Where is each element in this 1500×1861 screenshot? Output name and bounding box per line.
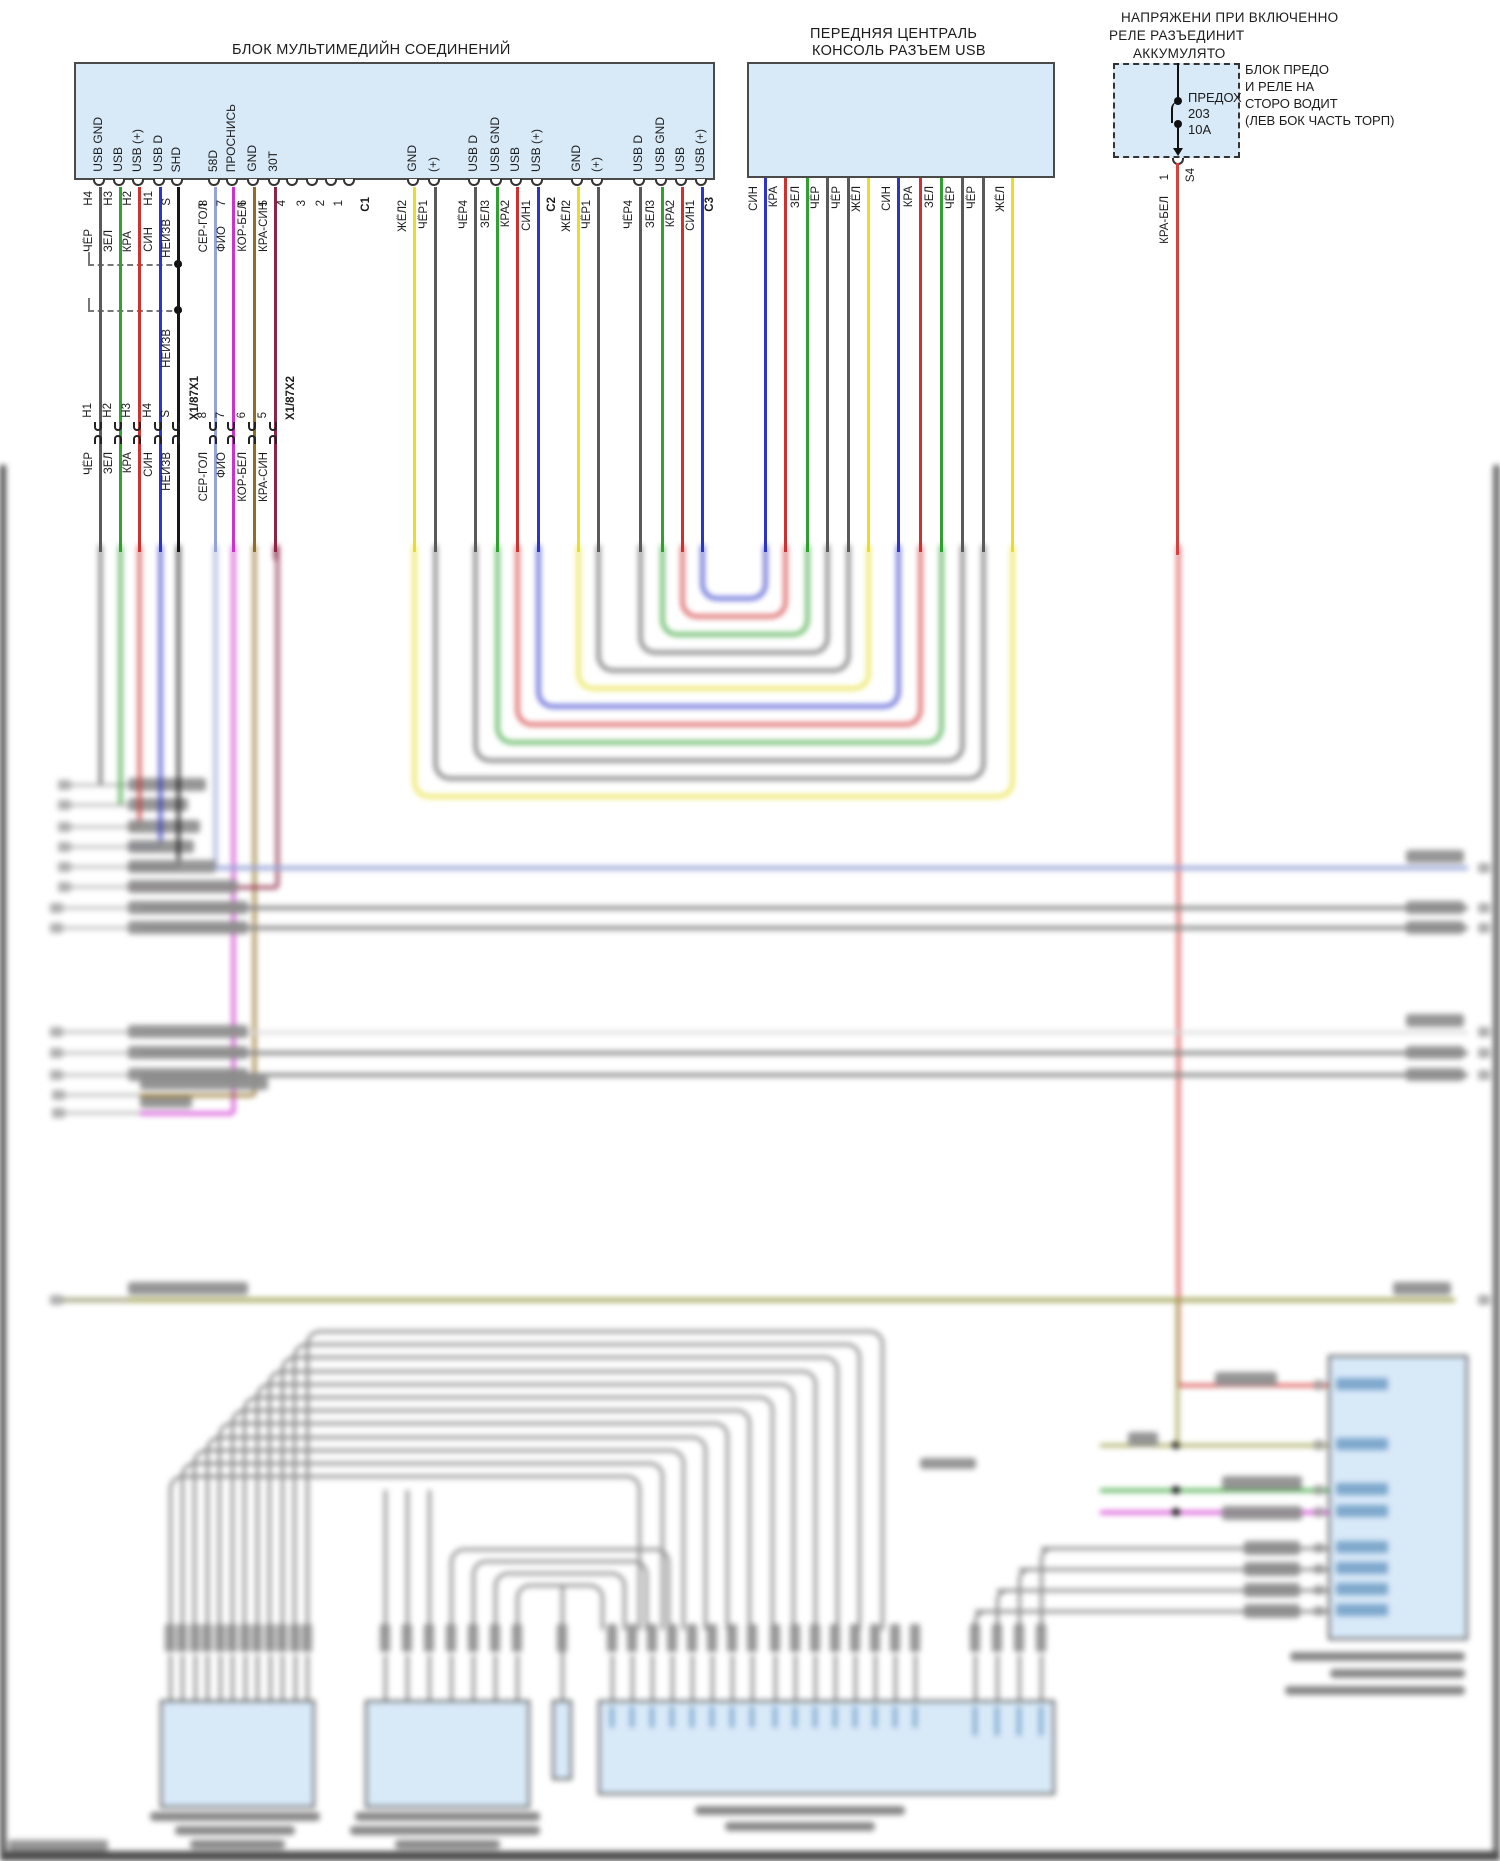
junction-dot xyxy=(1172,1486,1180,1494)
inline-connector-box xyxy=(627,1624,637,1652)
drop-wire xyxy=(276,545,279,887)
inline-connector-box xyxy=(177,1624,187,1652)
drop-wire xyxy=(177,545,180,867)
row-leader xyxy=(65,1094,140,1096)
illegible-wire-label xyxy=(128,860,216,873)
inline-connector-box xyxy=(647,1624,657,1652)
inline-connector-box xyxy=(302,1624,312,1652)
inline-connector-box xyxy=(215,1624,225,1652)
illegible-caption-line xyxy=(190,1840,285,1849)
row-leader xyxy=(63,1299,128,1301)
illegible-row-number xyxy=(1478,1070,1490,1080)
pin-label-bar xyxy=(1336,1438,1388,1450)
inline-connector-box xyxy=(770,1624,780,1652)
illegible-caption-line xyxy=(395,1840,500,1849)
illegible-caption-line xyxy=(1290,1652,1465,1661)
block-pin-wire xyxy=(711,1655,714,1700)
illegible-wire-label xyxy=(1222,1506,1302,1520)
wire-cont xyxy=(253,545,256,1095)
illegible-wire-label xyxy=(140,1095,192,1108)
illegible-caption-line xyxy=(175,1826,295,1835)
bottom-device-block xyxy=(598,1700,1055,1795)
block-pin-wire xyxy=(384,1655,387,1700)
illegible-wire-label xyxy=(1406,850,1464,863)
illegible-wire-label xyxy=(1215,1372,1277,1386)
block-pin-wire xyxy=(671,1655,674,1700)
drop-wire xyxy=(138,545,141,827)
row-leader xyxy=(71,804,128,806)
illegible-row-number xyxy=(1478,863,1490,873)
pin-label-bar xyxy=(630,1706,634,1728)
page-border-right xyxy=(1493,465,1500,1861)
pin-label-bar xyxy=(1336,1541,1388,1553)
pin-label-bar xyxy=(670,1706,674,1728)
row-leader xyxy=(63,927,128,929)
block-pin-wire xyxy=(231,1655,234,1700)
drop-wire xyxy=(99,545,102,785)
illegible-row-number xyxy=(58,780,71,790)
illegible-caption-line xyxy=(1330,1669,1465,1678)
block-pin-wire xyxy=(281,1655,284,1700)
illegible-caption-line xyxy=(725,1822,875,1831)
blurred-section xyxy=(0,0,1500,1861)
inline-connector-box xyxy=(240,1624,250,1652)
inline-connector-box xyxy=(468,1624,478,1652)
pin-label-bar xyxy=(1336,1505,1388,1517)
pin-label-bar xyxy=(710,1706,714,1728)
illegible-row-number xyxy=(1478,1295,1490,1305)
illegible-row-number xyxy=(1478,923,1490,933)
block-pin-wire xyxy=(834,1655,837,1700)
pin-label-bar xyxy=(893,1706,897,1728)
pin-label-bar xyxy=(730,1706,734,1728)
inline-connector-box xyxy=(707,1624,717,1652)
illegible-row-number xyxy=(58,800,71,810)
pin-label-bar xyxy=(750,1706,754,1728)
block-pin-wire xyxy=(651,1655,654,1700)
u-link-ZHEL xyxy=(413,545,1014,798)
block-pin-wire xyxy=(450,1655,453,1700)
block-pin-wire xyxy=(219,1655,222,1700)
illegible-wire-label xyxy=(1406,901,1464,914)
block-pin-wire xyxy=(894,1655,897,1700)
block-pin-wire xyxy=(244,1655,247,1700)
illegible-pin-number xyxy=(1314,1440,1324,1450)
block-pin-wire xyxy=(631,1655,634,1700)
inline-connector-box xyxy=(227,1624,237,1652)
pin-label-bar xyxy=(1336,1583,1388,1595)
illegible-wire-label xyxy=(1406,1014,1464,1027)
long-row-wire xyxy=(140,926,1468,930)
illegible-row-number xyxy=(58,842,71,852)
row-leader xyxy=(71,846,128,848)
illegible-row-number xyxy=(50,923,63,933)
illegible-caption-line xyxy=(695,1806,905,1815)
inline-connector-box xyxy=(290,1624,300,1652)
illegible-wire-label xyxy=(128,820,200,833)
illegible-wire-label xyxy=(128,921,248,934)
block-pin-wire xyxy=(1040,1655,1043,1700)
block-pin-wire xyxy=(472,1655,475,1700)
right-corner-wire xyxy=(974,1610,1327,1629)
drop-wire xyxy=(119,545,122,805)
inline-connector-box xyxy=(830,1624,840,1652)
illegible-wire-label xyxy=(128,901,248,914)
block-pin-wire xyxy=(854,1655,857,1700)
row-leader xyxy=(71,866,128,868)
pin-label-bar xyxy=(610,1706,614,1728)
block-pin-wire xyxy=(516,1655,519,1700)
block-pin-wire xyxy=(194,1655,197,1700)
pin-label-bar xyxy=(773,1706,777,1728)
inline-connector-box xyxy=(380,1624,390,1652)
inline-connector-box xyxy=(790,1624,800,1652)
illegible-wire-label xyxy=(128,1025,248,1038)
illegible-label xyxy=(920,1458,976,1469)
inline-connector-box xyxy=(265,1624,275,1652)
inline-connector-box xyxy=(810,1624,820,1652)
bottom-device-block xyxy=(365,1700,530,1808)
illegible-row-number xyxy=(58,822,71,832)
drop-row-wire xyxy=(140,1094,254,1097)
illegible-wire-label xyxy=(1406,1068,1464,1081)
inline-connector-box xyxy=(202,1624,212,1652)
pin-label-bar xyxy=(973,1706,977,1736)
inline-connector-box xyxy=(446,1624,456,1652)
illegible-row-number xyxy=(50,1295,63,1305)
inline-connector-box xyxy=(727,1624,737,1652)
pin-label-bar xyxy=(1336,1604,1388,1616)
illegible-row-number xyxy=(1478,903,1490,913)
illegible-wire-label xyxy=(1128,1432,1158,1446)
inline-connector-box xyxy=(687,1624,697,1652)
inline-connector-box xyxy=(870,1624,880,1652)
long-row-wire xyxy=(140,1031,1468,1034)
inline-connector-box xyxy=(277,1624,287,1652)
pin-label-bar xyxy=(1039,1706,1043,1736)
block-pin-wire xyxy=(406,1655,409,1700)
illegible-row-number xyxy=(1478,1048,1490,1058)
block2-wire xyxy=(406,1490,409,1635)
inline-connector-box xyxy=(424,1624,434,1652)
block-pin-wire xyxy=(731,1655,734,1700)
pin-label-bar xyxy=(793,1706,797,1728)
illegible-row-number xyxy=(1478,1027,1490,1037)
pin-label-bar xyxy=(1017,1706,1021,1736)
illegible-row-number xyxy=(58,862,71,872)
row-leader xyxy=(71,826,128,828)
row-leader xyxy=(63,1031,128,1033)
block-pin-wire xyxy=(611,1655,614,1700)
illegible-row-number xyxy=(50,1027,63,1037)
illegible-row-number xyxy=(52,1108,65,1118)
long-row-wire xyxy=(140,1051,1468,1055)
inline-connector-box xyxy=(607,1624,617,1652)
block-pin-wire xyxy=(996,1655,999,1700)
inline-connector-box xyxy=(890,1624,900,1652)
inline-connector-box xyxy=(557,1624,567,1652)
block-pin-wire xyxy=(181,1655,184,1700)
illegible-label xyxy=(8,1840,108,1851)
illegible-wire-label xyxy=(1406,921,1464,934)
pin-label-bar xyxy=(813,1706,817,1728)
pin-label-bar xyxy=(1336,1562,1388,1574)
junction-dot xyxy=(1172,1508,1180,1516)
long-row-wire xyxy=(215,866,1468,870)
illegible-wire-label xyxy=(1222,1476,1302,1490)
block-pin-wire xyxy=(494,1655,497,1700)
pin-label-bar xyxy=(1336,1483,1388,1495)
illegible-wire-label xyxy=(128,1046,248,1059)
inline-connector-box xyxy=(402,1624,412,1652)
block-pin-wire xyxy=(751,1655,754,1700)
illegible-row-number xyxy=(50,1048,63,1058)
inline-connector-box xyxy=(165,1624,175,1652)
pin-label-bar xyxy=(873,1706,877,1728)
bottom-device-block xyxy=(552,1700,572,1780)
inline-connector-box xyxy=(910,1624,920,1652)
illegible-pin-number xyxy=(1314,1380,1324,1390)
illegible-caption-line xyxy=(150,1812,320,1821)
illegible-wire-label xyxy=(128,840,194,853)
pin-label-bar xyxy=(913,1706,917,1728)
wire-cont xyxy=(214,545,217,868)
block-pin-wire xyxy=(691,1655,694,1700)
long-row-wire xyxy=(140,1073,1468,1077)
inline-connector-box xyxy=(512,1624,522,1652)
illegible-pin-number xyxy=(1314,1507,1324,1517)
block-pin-wire xyxy=(269,1655,272,1700)
olive-feed-wire xyxy=(1176,1300,1179,1445)
pin-label-bar xyxy=(995,1706,999,1736)
inline-connector-box xyxy=(667,1624,677,1652)
inline-connector-box xyxy=(747,1624,757,1652)
pin-label-bar xyxy=(833,1706,837,1728)
block2-wire xyxy=(428,1490,431,1635)
block-pin-wire xyxy=(256,1655,259,1700)
block-pin-wire xyxy=(169,1655,172,1700)
pin-label-bar xyxy=(690,1706,694,1728)
block-pin-wire xyxy=(874,1655,877,1700)
illegible-row-number xyxy=(50,903,63,913)
wire-cont-krabel xyxy=(1177,545,1180,1385)
long-row-wire xyxy=(62,1298,1455,1302)
illegible-caption-line xyxy=(355,1812,540,1821)
illegible-row-number xyxy=(52,1090,65,1100)
row-leader xyxy=(71,886,128,888)
illegible-row-number xyxy=(50,1070,63,1080)
inline-connector-box xyxy=(190,1624,200,1652)
illegible-wire-label xyxy=(140,1077,268,1090)
pin-label-bar xyxy=(853,1706,857,1728)
block-pin-wire xyxy=(428,1655,431,1700)
long-row-wire xyxy=(140,906,1468,910)
block2-wire xyxy=(384,1490,387,1635)
block-pin-wire xyxy=(914,1655,917,1700)
block-pin-wire xyxy=(206,1655,209,1700)
inline-connector-box xyxy=(850,1624,860,1652)
pin-label-bar xyxy=(650,1706,654,1728)
block-pin-wire xyxy=(814,1655,817,1700)
illegible-row-number xyxy=(58,882,71,892)
wiring-diagram-page: БЛОК МУЛЬТИМЕДИЙН СОЕДИНЕНИЙ ПЕРЕДНЯЯ ЦЕ… xyxy=(0,0,1500,1861)
bottom-device-block xyxy=(160,1700,315,1808)
block-pin-wire xyxy=(974,1655,977,1700)
row-leader xyxy=(63,907,128,909)
row-leader xyxy=(63,1052,128,1054)
illegible-wire-label xyxy=(1393,1282,1451,1295)
row-leader xyxy=(65,1112,140,1114)
page-border-bottom xyxy=(0,1851,1500,1861)
page-border-left xyxy=(0,465,6,1861)
inline-connector-box xyxy=(490,1624,500,1652)
pin-label-bar xyxy=(1336,1378,1388,1390)
drop-wire xyxy=(159,545,162,847)
inline-connector-box xyxy=(252,1624,262,1652)
drop-row-wire xyxy=(140,1112,233,1115)
block-pin-wire xyxy=(561,1655,564,1700)
illegible-wire-label xyxy=(128,1282,248,1295)
block-pin-wire xyxy=(294,1655,297,1700)
block-pin-wire xyxy=(774,1655,777,1700)
illegible-caption-line xyxy=(1285,1686,1465,1695)
right-device-block xyxy=(1328,1355,1468,1640)
illegible-pin-number xyxy=(1314,1485,1324,1495)
illegible-wire-label xyxy=(128,880,238,893)
illegible-caption-line xyxy=(350,1826,540,1835)
block-pin-wire xyxy=(1018,1655,1021,1700)
block-pin-wire xyxy=(794,1655,797,1700)
row-leader xyxy=(63,1074,128,1076)
illegible-wire-label xyxy=(1406,1046,1464,1059)
block-pin-wire xyxy=(306,1655,309,1700)
